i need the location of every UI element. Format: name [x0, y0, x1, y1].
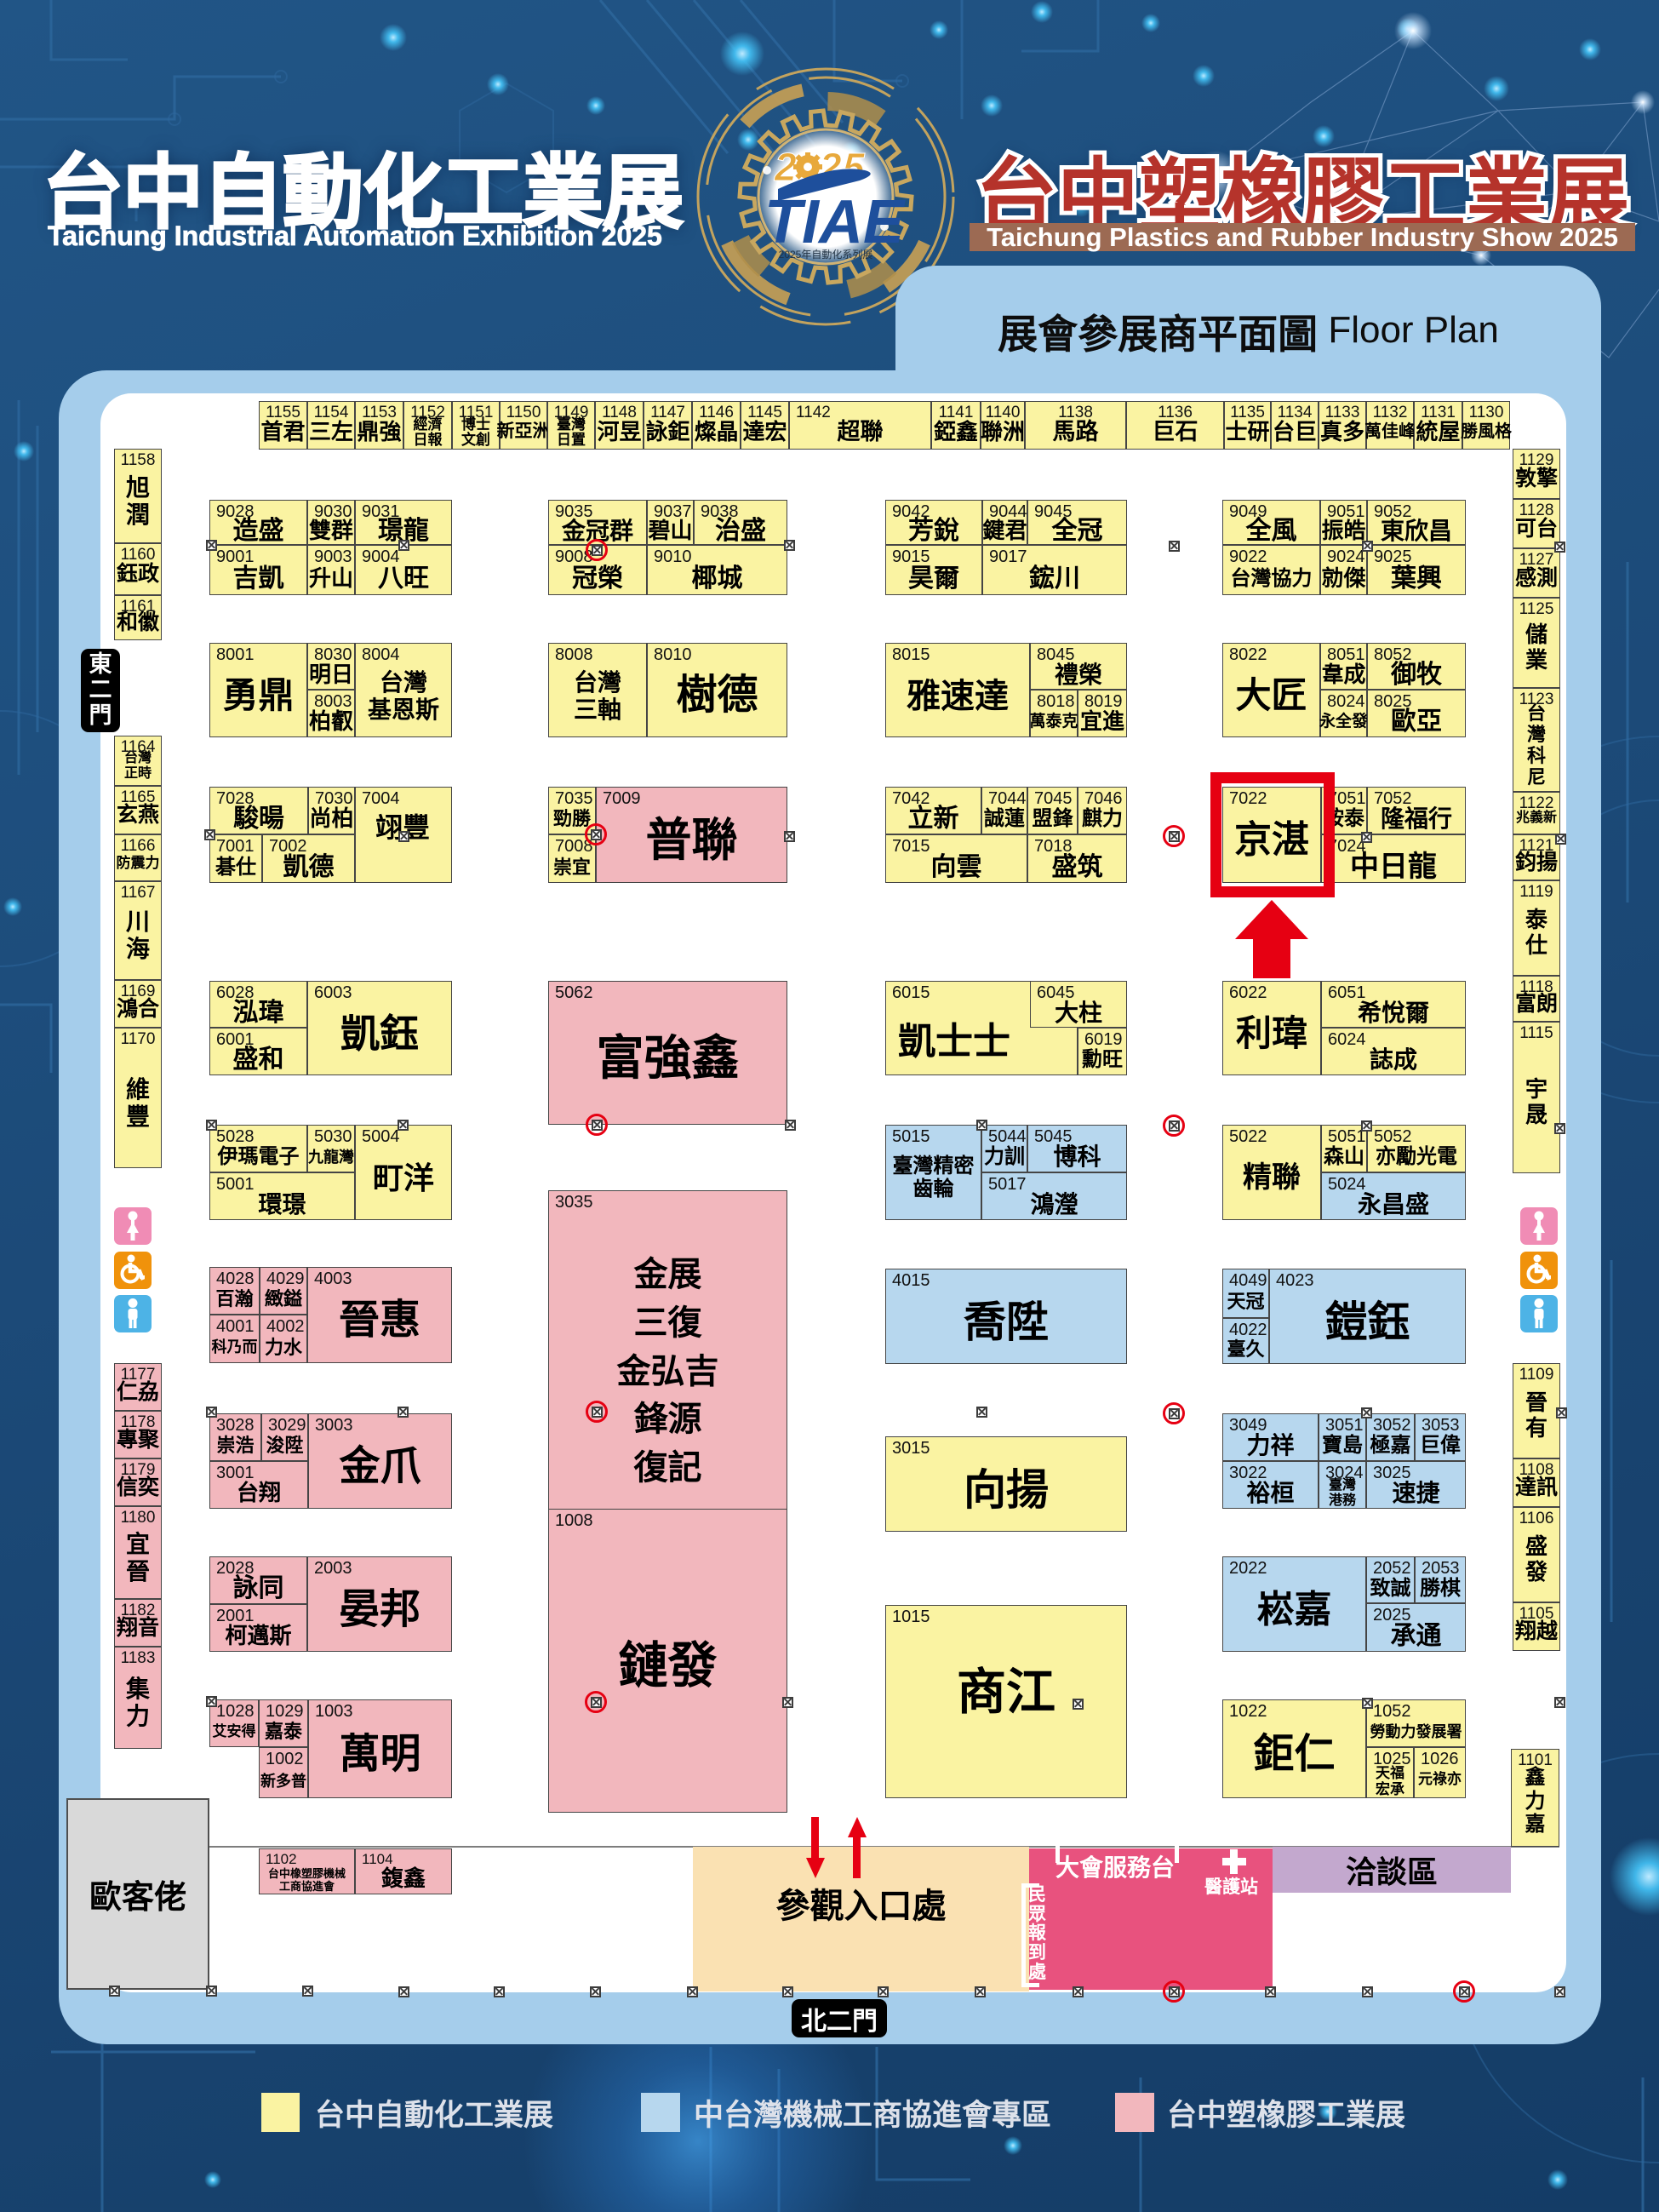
- svg-text:2025年自動化系列展: 2025年自動化系列展: [779, 249, 873, 261]
- svg-text:TIAE: TIAE: [764, 188, 906, 256]
